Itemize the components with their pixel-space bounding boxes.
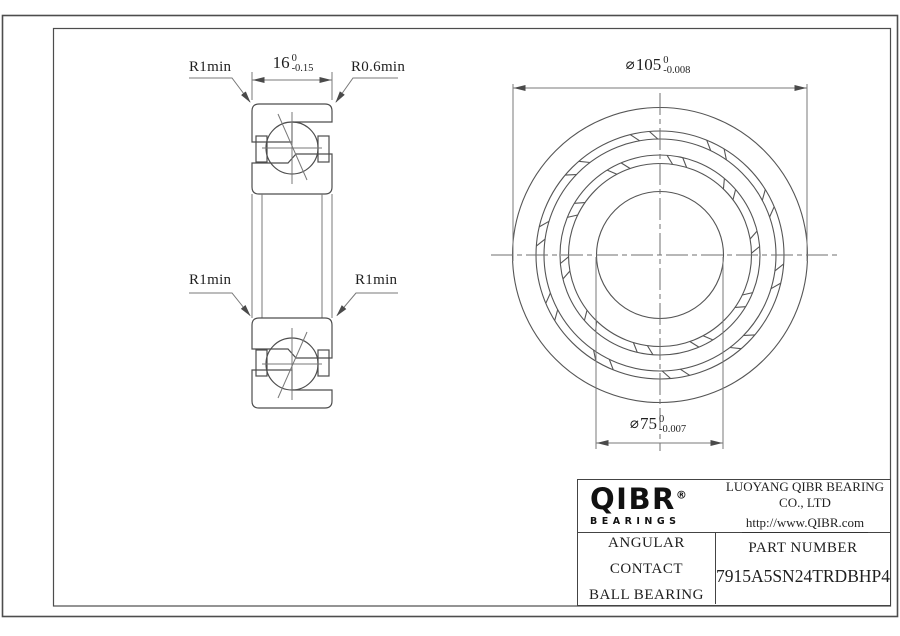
bore-diameter-dimension: ⌀ 75 0 -0.007: [578, 413, 738, 435]
registered-trademark-icon: ®: [676, 489, 687, 502]
label-r1min-top: R1min: [189, 59, 231, 76]
section-view: [252, 104, 332, 408]
width-dim-value: 16: [273, 53, 290, 73]
cage-bottom-right: [318, 350, 329, 376]
company-logo: QIBR® BEARINGS: [578, 485, 720, 527]
label-r1min-mid-right: R1min: [355, 272, 397, 289]
logo-text: QIBR®: [590, 485, 720, 514]
width-dim-tolerance: 0 -0.15: [292, 54, 314, 74]
company-name: LUOYANG QIBR BEARING CO., LTD: [720, 479, 890, 512]
label-r06min: R0.6min: [351, 59, 405, 76]
cage-bottom-left: [256, 350, 267, 376]
company-info: LUOYANG QIBR BEARING CO., LTD http://www…: [720, 479, 890, 533]
width-dimension: 16 0 -0.15: [253, 53, 333, 74]
front-view: [491, 93, 839, 451]
drawing-sheet: R1min 16 0 -0.15 R0.6min R1min R1min ⌀ 1…: [0, 0, 900, 636]
od-dim-value: 105: [636, 55, 662, 75]
bore-lines: [252, 194, 332, 318]
product-type-line1: ANGULAR CONTACT: [578, 530, 715, 582]
part-number-label: PART NUMBER: [716, 540, 890, 557]
outer-diameter-dimension: ⌀ 105 0 -0.008: [578, 54, 738, 76]
title-block: QIBR® BEARINGS LUOYANG QIBR BEARING CO.,…: [577, 479, 891, 606]
logo-subtext: BEARINGS: [590, 517, 720, 527]
leader-r1min-top: [189, 78, 250, 102]
diameter-symbol: ⌀: [626, 55, 635, 73]
title-block-detail-row: ANGULAR CONTACT BALL BEARING PART NUMBER…: [578, 533, 890, 604]
ball-top-centerlines: [262, 112, 322, 184]
label-r1min-mid-left: R1min: [189, 272, 231, 289]
leader-r06min: [336, 78, 398, 102]
product-type-cell: ANGULAR CONTACT BALL BEARING: [578, 533, 716, 604]
width-dim-lines: [252, 72, 332, 100]
cage-top-left: [256, 136, 267, 162]
title-block-header-row: QIBR® BEARINGS LUOYANG QIBR BEARING CO.,…: [578, 480, 890, 533]
company-url: http://www.QIBR.com: [742, 514, 868, 533]
diameter-symbol: ⌀: [630, 414, 639, 432]
product-type-line2: BALL BEARING: [578, 582, 715, 608]
part-number-cell: PART NUMBER 7915A5SN24TRDBHP4: [716, 533, 890, 604]
cage-top-right: [318, 136, 329, 162]
ball-bottom-centerlines: [262, 328, 322, 400]
od-dim-tolerance: 0 -0.008: [663, 56, 690, 76]
leader-r1min-mid-right: [337, 293, 398, 316]
bore-dim-value: 75: [640, 414, 657, 434]
leader-r1min-mid-left: [189, 293, 250, 316]
bore-dim-tolerance: 0 -0.007: [659, 415, 686, 435]
part-number-value: 7915A5SN24TRDBHP4: [716, 566, 890, 587]
